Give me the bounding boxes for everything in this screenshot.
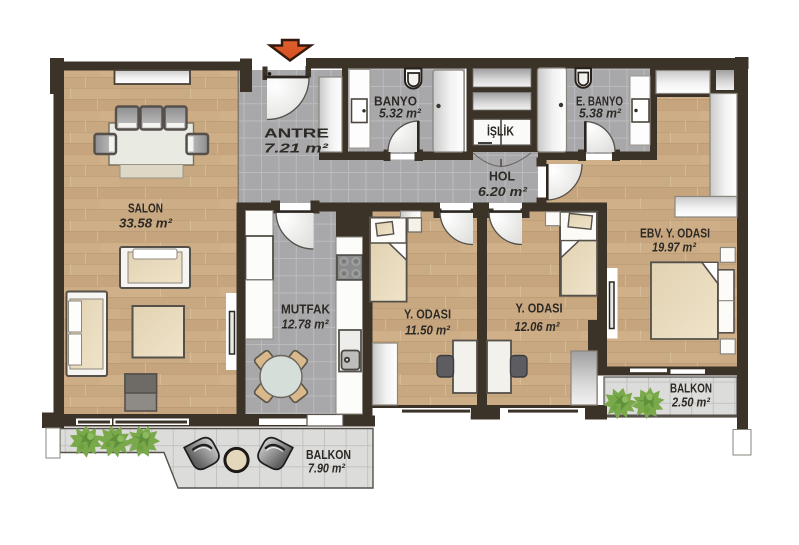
- svg-text:7.21 m²: 7.21 m²: [264, 141, 329, 156]
- svg-text:İŞLİK: İŞLİK: [487, 124, 514, 139]
- svg-text:Y. ODASI: Y. ODASI: [516, 301, 563, 316]
- svg-text:Y. ODASI: Y. ODASI: [404, 307, 451, 322]
- svg-text:2.50 m²: 2.50 m²: [671, 395, 710, 410]
- svg-text:ANTRE: ANTRE: [264, 126, 329, 141]
- svg-text:BALKON: BALKON: [670, 381, 712, 396]
- svg-text:HOL: HOL: [489, 169, 515, 184]
- svg-text:5.38 m²: 5.38 m²: [579, 106, 622, 121]
- svg-text:6.20 m²: 6.20 m²: [478, 184, 528, 199]
- svg-text:33.58 m²: 33.58 m²: [119, 216, 173, 231]
- svg-text:EBV. Y. ODASI: EBV. Y. ODASI: [640, 226, 710, 241]
- svg-text:5.32 m²: 5.32 m²: [379, 106, 422, 121]
- svg-text:7.90 m²: 7.90 m²: [308, 461, 346, 476]
- svg-text:11.50 m²: 11.50 m²: [405, 323, 451, 338]
- svg-text:SALON: SALON: [128, 201, 163, 216]
- svg-text:19.97 m²: 19.97 m²: [652, 240, 697, 255]
- svg-text:MUTFAK: MUTFAK: [281, 302, 331, 317]
- svg-text:12.06 m²: 12.06 m²: [515, 319, 561, 334]
- svg-text:12.78 m²: 12.78 m²: [282, 317, 330, 332]
